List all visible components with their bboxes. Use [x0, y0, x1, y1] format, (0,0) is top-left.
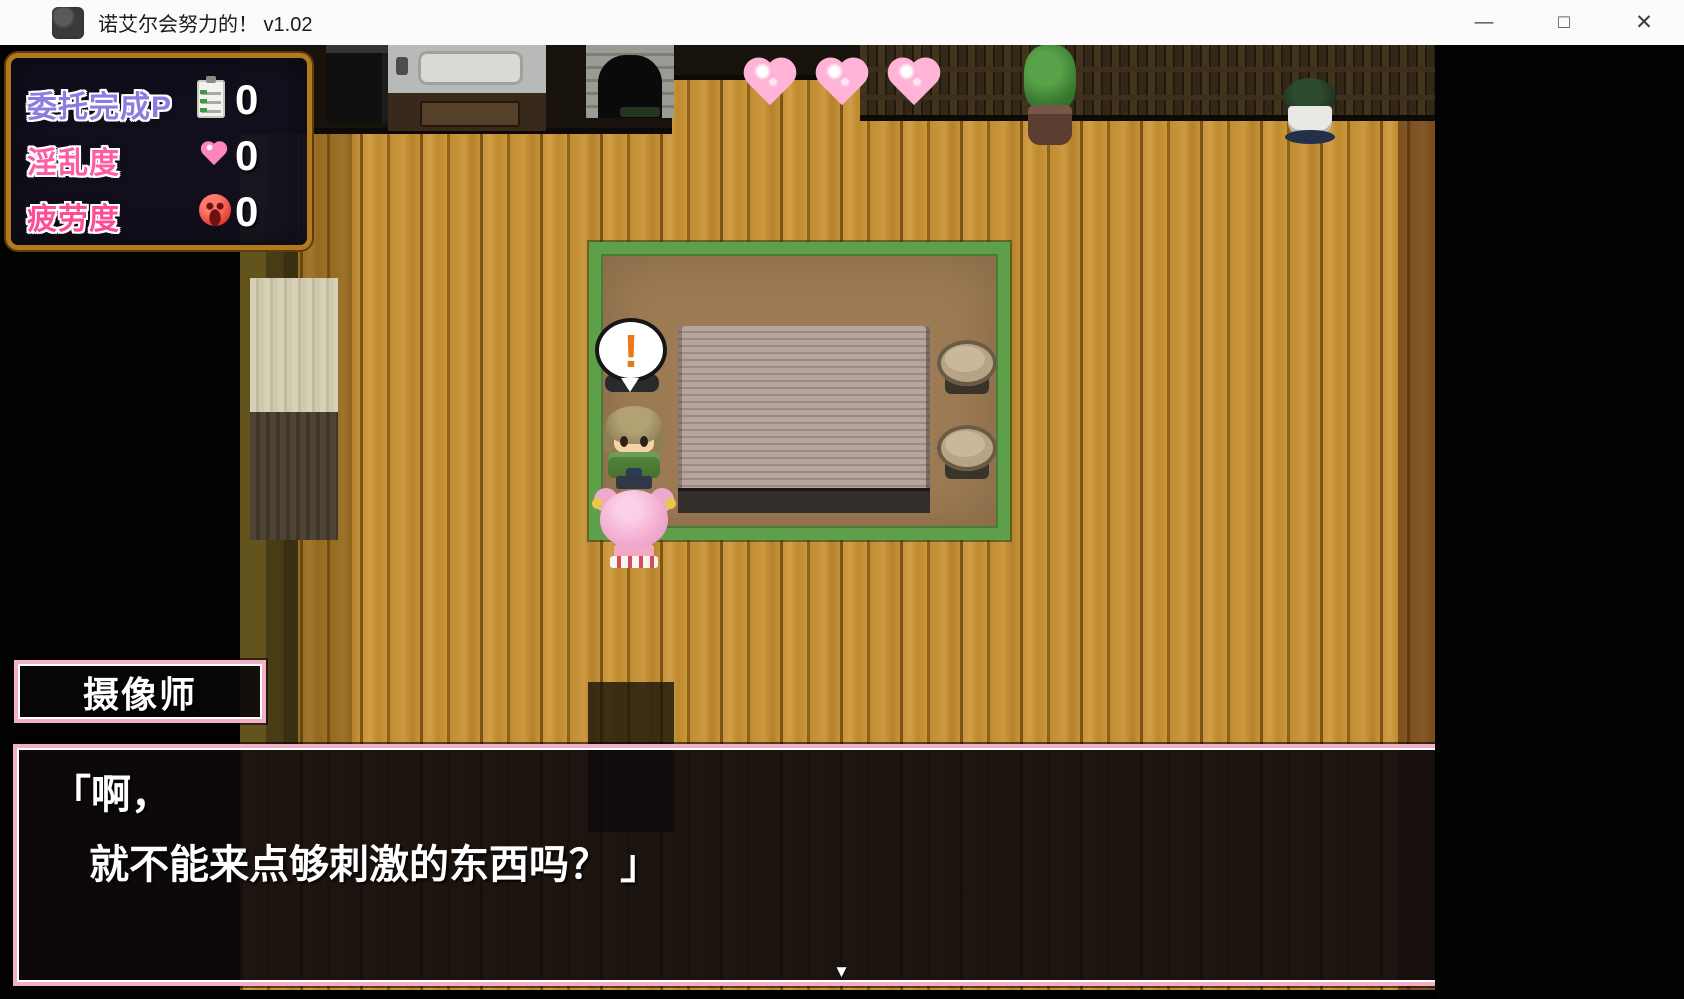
- checklist-clip: [206, 76, 216, 83]
- quest-points-value: 0: [235, 76, 258, 124]
- hud-row-lewdness: 淫乱度 0: [11, 128, 307, 184]
- potted-plant-tall: [1020, 45, 1080, 149]
- pillar-top: [250, 278, 338, 412]
- potted-plant-white: [1281, 78, 1339, 152]
- hair-ornament: [592, 498, 603, 509]
- dialogue-box[interactable]: 「啊， 就不能来点够刺激的东西吗？ 」 ▼: [13, 744, 1670, 986]
- bookshelf-shelf: [860, 67, 1435, 72]
- plant-pot: [1028, 105, 1072, 145]
- sprite-hair: [600, 490, 668, 548]
- counter-cabinet: [388, 93, 546, 131]
- window-title: 诺艾尔会努力的！ v1.02: [98, 8, 312, 37]
- lewdness-label: 淫乱度: [27, 138, 120, 182]
- title-bar: 诺艾尔会努力的！ v1.02 — □ ✕: [0, 0, 1684, 46]
- wall-trim: [860, 115, 1435, 121]
- heart-icon: [812, 55, 872, 111]
- balloon-tail: [621, 378, 639, 392]
- fireplace-grate: [620, 107, 660, 117]
- exclamation-mark: !: [595, 322, 667, 380]
- round-stool: [937, 425, 997, 482]
- heart-sparkle: [206, 144, 213, 151]
- app-icon: [52, 7, 84, 39]
- dialogue-line: 「啊，: [51, 762, 1666, 828]
- sprite-eye: [640, 436, 648, 447]
- game-window: 诺艾尔会努力的！ v1.02 — □ ✕: [0, 0, 1684, 999]
- fatigue-label: 疲劳度: [27, 194, 120, 238]
- plant-leaves: [1024, 45, 1076, 113]
- stove-appliance: [326, 45, 392, 123]
- checklist-icon: [197, 80, 225, 118]
- lewdness-value: 0: [235, 132, 258, 180]
- quest-points-label: 委托完成P: [27, 82, 172, 126]
- close-icon: ✕: [1635, 10, 1653, 35]
- sprite-eye: [620, 436, 628, 447]
- pillar-bottom: [250, 412, 338, 540]
- wooden-table: [678, 326, 930, 513]
- checklist-checks: [200, 86, 207, 112]
- stone-fireplace: [586, 45, 674, 118]
- exclamation-balloon: !: [595, 318, 669, 398]
- stool-highlight: [945, 431, 985, 457]
- close-button[interactable]: ✕: [1604, 0, 1684, 45]
- minimize-button[interactable]: —: [1444, 0, 1524, 45]
- heart-icon: [884, 55, 944, 111]
- maximize-button[interactable]: □: [1524, 0, 1604, 45]
- npc-photographer-sprite[interactable]: [604, 406, 664, 490]
- round-stool: [937, 340, 997, 397]
- bookshelf-books: [860, 45, 1435, 115]
- plant-base: [1285, 130, 1335, 144]
- cabinet-drawer: [420, 101, 520, 127]
- player-noelle-sprite[interactable]: [592, 486, 676, 568]
- minimize-icon: —: [1475, 12, 1494, 34]
- hud-row-fatigue: 疲劳度 0: [11, 184, 307, 240]
- dialogue-line: 就不能来点够刺激的东西吗？ 」: [89, 832, 1666, 898]
- top-wall-bookshelf: [860, 45, 1435, 115]
- game-viewport[interactable]: ! 委托完成P 0: [0, 45, 1684, 999]
- sprite-skirt: [610, 556, 658, 568]
- heart-sparkle: [912, 77, 922, 87]
- angry-face-icon: [199, 194, 231, 226]
- faucet: [396, 57, 408, 75]
- stool-highlight: [945, 346, 985, 372]
- continue-arrow-icon: ▼: [833, 962, 850, 982]
- pink-heart-icon: [199, 140, 229, 168]
- heart-sparkle: [840, 77, 850, 87]
- status-hud-panel: 委托完成P 0 淫乱度 0 疲劳度 0: [6, 53, 312, 250]
- hair-ornament: [665, 498, 676, 509]
- bookshelf-shelf: [860, 95, 1435, 100]
- hud-row-quest: 委托完成P 0: [11, 72, 307, 128]
- speaker-name: 摄像师: [83, 666, 197, 718]
- sprite-hair: [606, 406, 662, 444]
- maximize-icon: □: [1558, 12, 1569, 34]
- map-void-right: [1435, 45, 1684, 999]
- fatigue-value: 0: [235, 188, 258, 236]
- kitchen-counter: [388, 45, 546, 93]
- heart-icon: [740, 55, 800, 111]
- table-shadow: [678, 488, 930, 513]
- sink-basin: [418, 51, 523, 85]
- speaker-name-box: 摄像师: [14, 660, 266, 723]
- heart-sparkle: [768, 77, 778, 87]
